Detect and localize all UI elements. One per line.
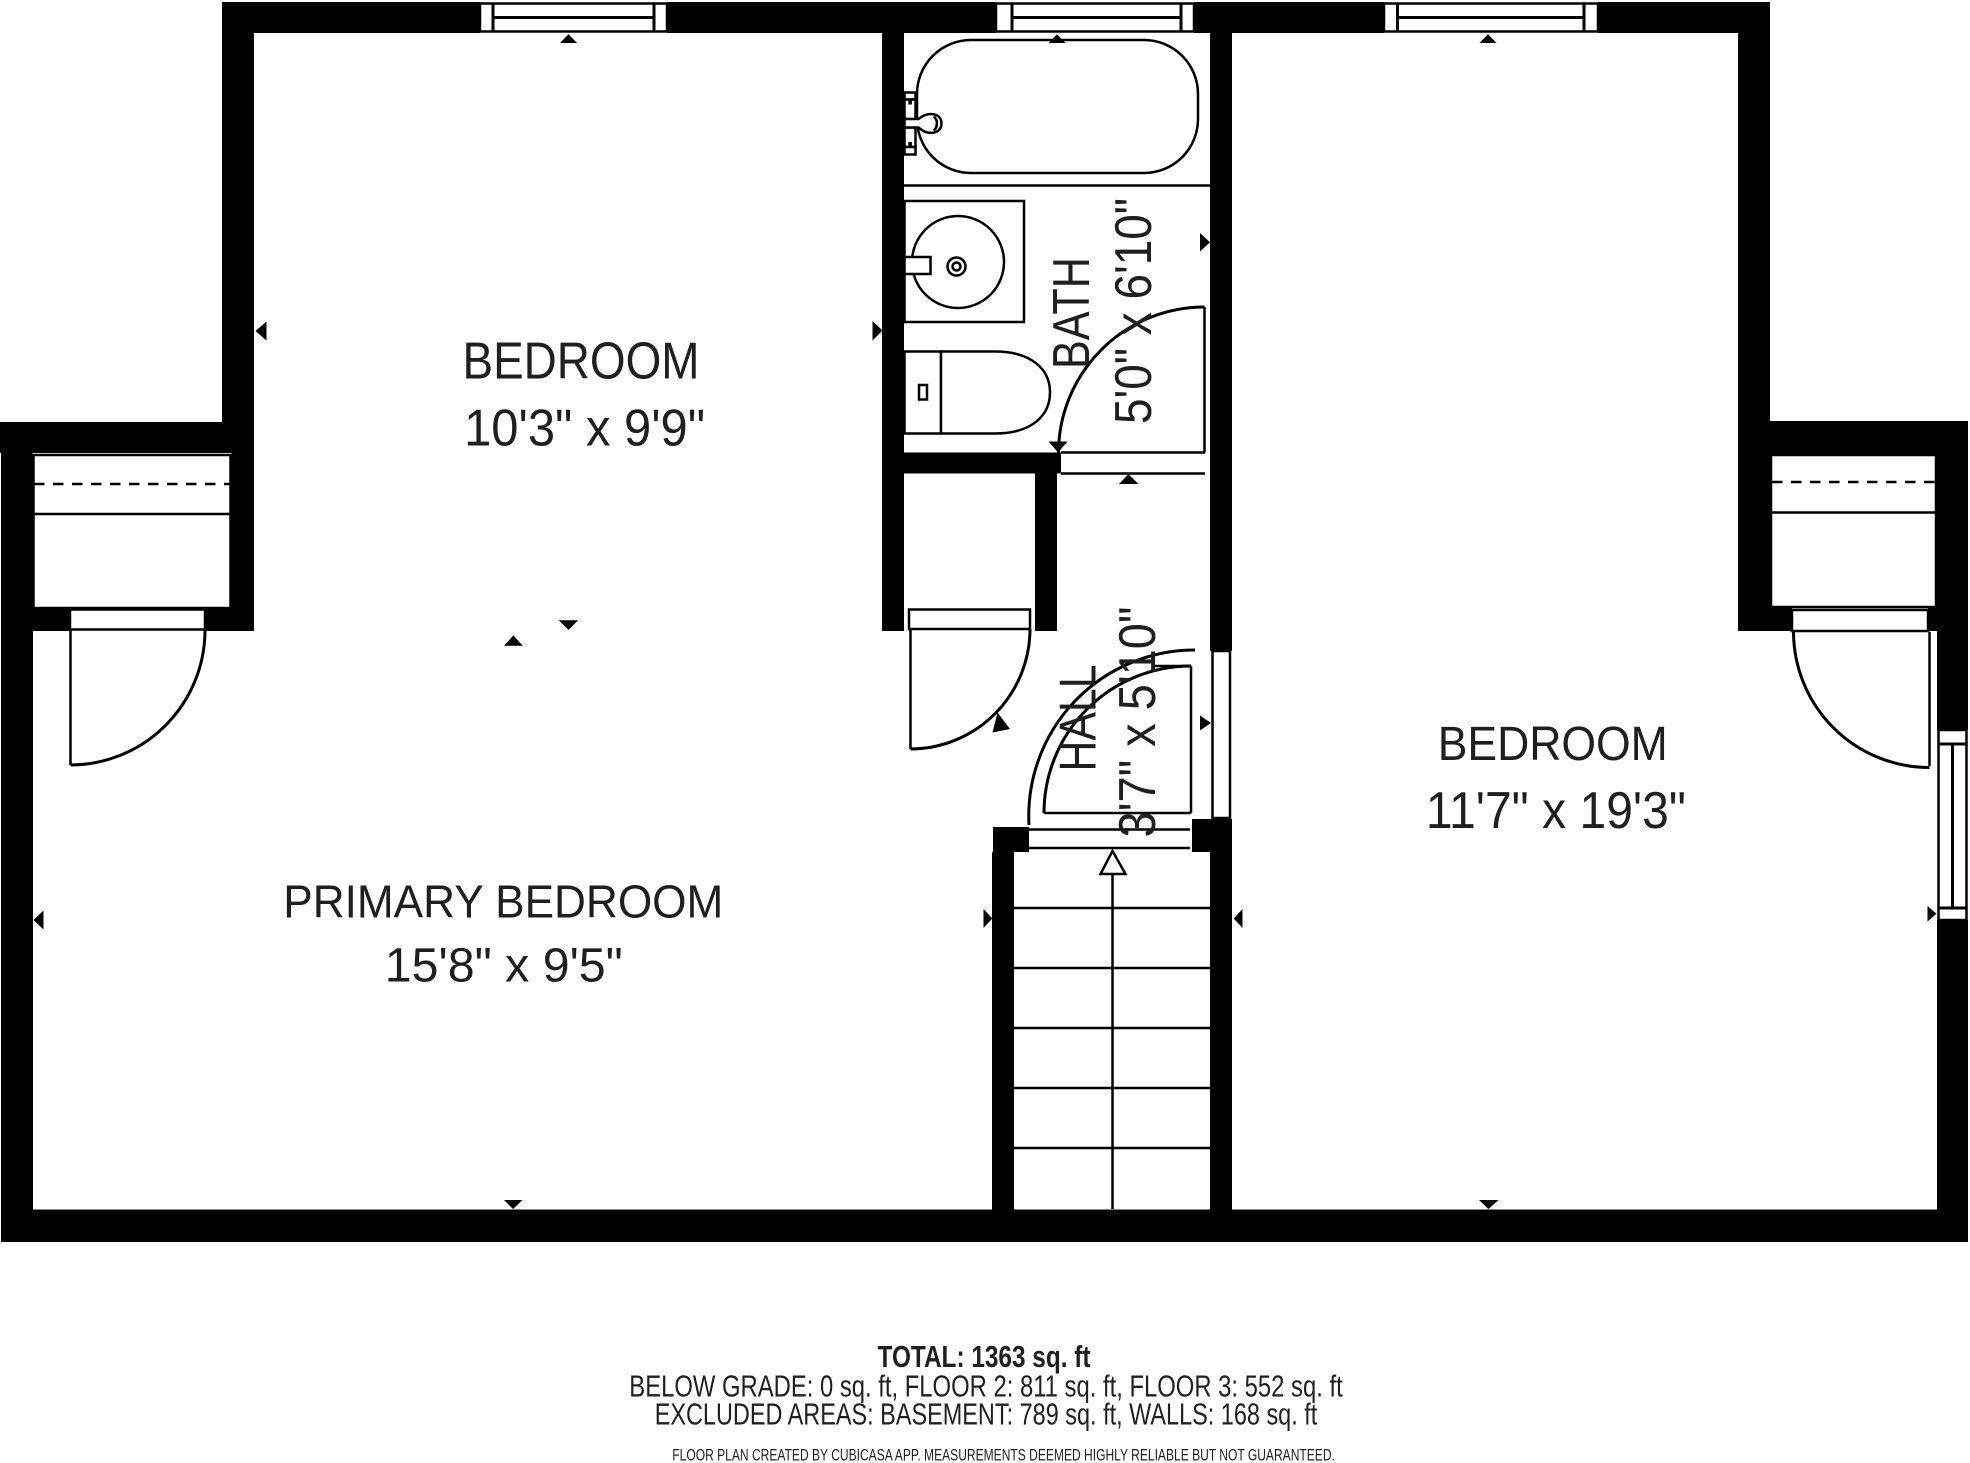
svg-text:BEDROOM: BEDROOM [463, 333, 700, 391]
svg-text:3'7" x 5'10": 3'7" x 5'10" [1109, 607, 1167, 838]
svg-text:BATH: BATH [1043, 257, 1101, 369]
svg-text:PRIMARY BEDROOM: PRIMARY BEDROOM [283, 876, 723, 928]
svg-text:EXCLUDED AREAS: BASEMENT: 789: EXCLUDED AREAS: BASEMENT: 789 sq. ft, WA… [655, 1397, 1318, 1432]
svg-text:HALL: HALL [1049, 665, 1107, 772]
svg-text:BEDROOM: BEDROOM [1438, 717, 1668, 771]
svg-text:11'7" x 19'3": 11'7" x 19'3" [1426, 782, 1686, 840]
svg-text:5'0" x 6'10": 5'0" x 6'10" [1105, 198, 1163, 424]
svg-text:FLOOR PLAN CREATED BY CUBICASA: FLOOR PLAN CREATED BY CUBICASA APP. MEAS… [672, 1447, 1335, 1463]
svg-text:15'8" x 9'5": 15'8" x 9'5" [385, 939, 623, 993]
svg-text:10'3" x 9'9": 10'3" x 9'9" [464, 400, 705, 458]
